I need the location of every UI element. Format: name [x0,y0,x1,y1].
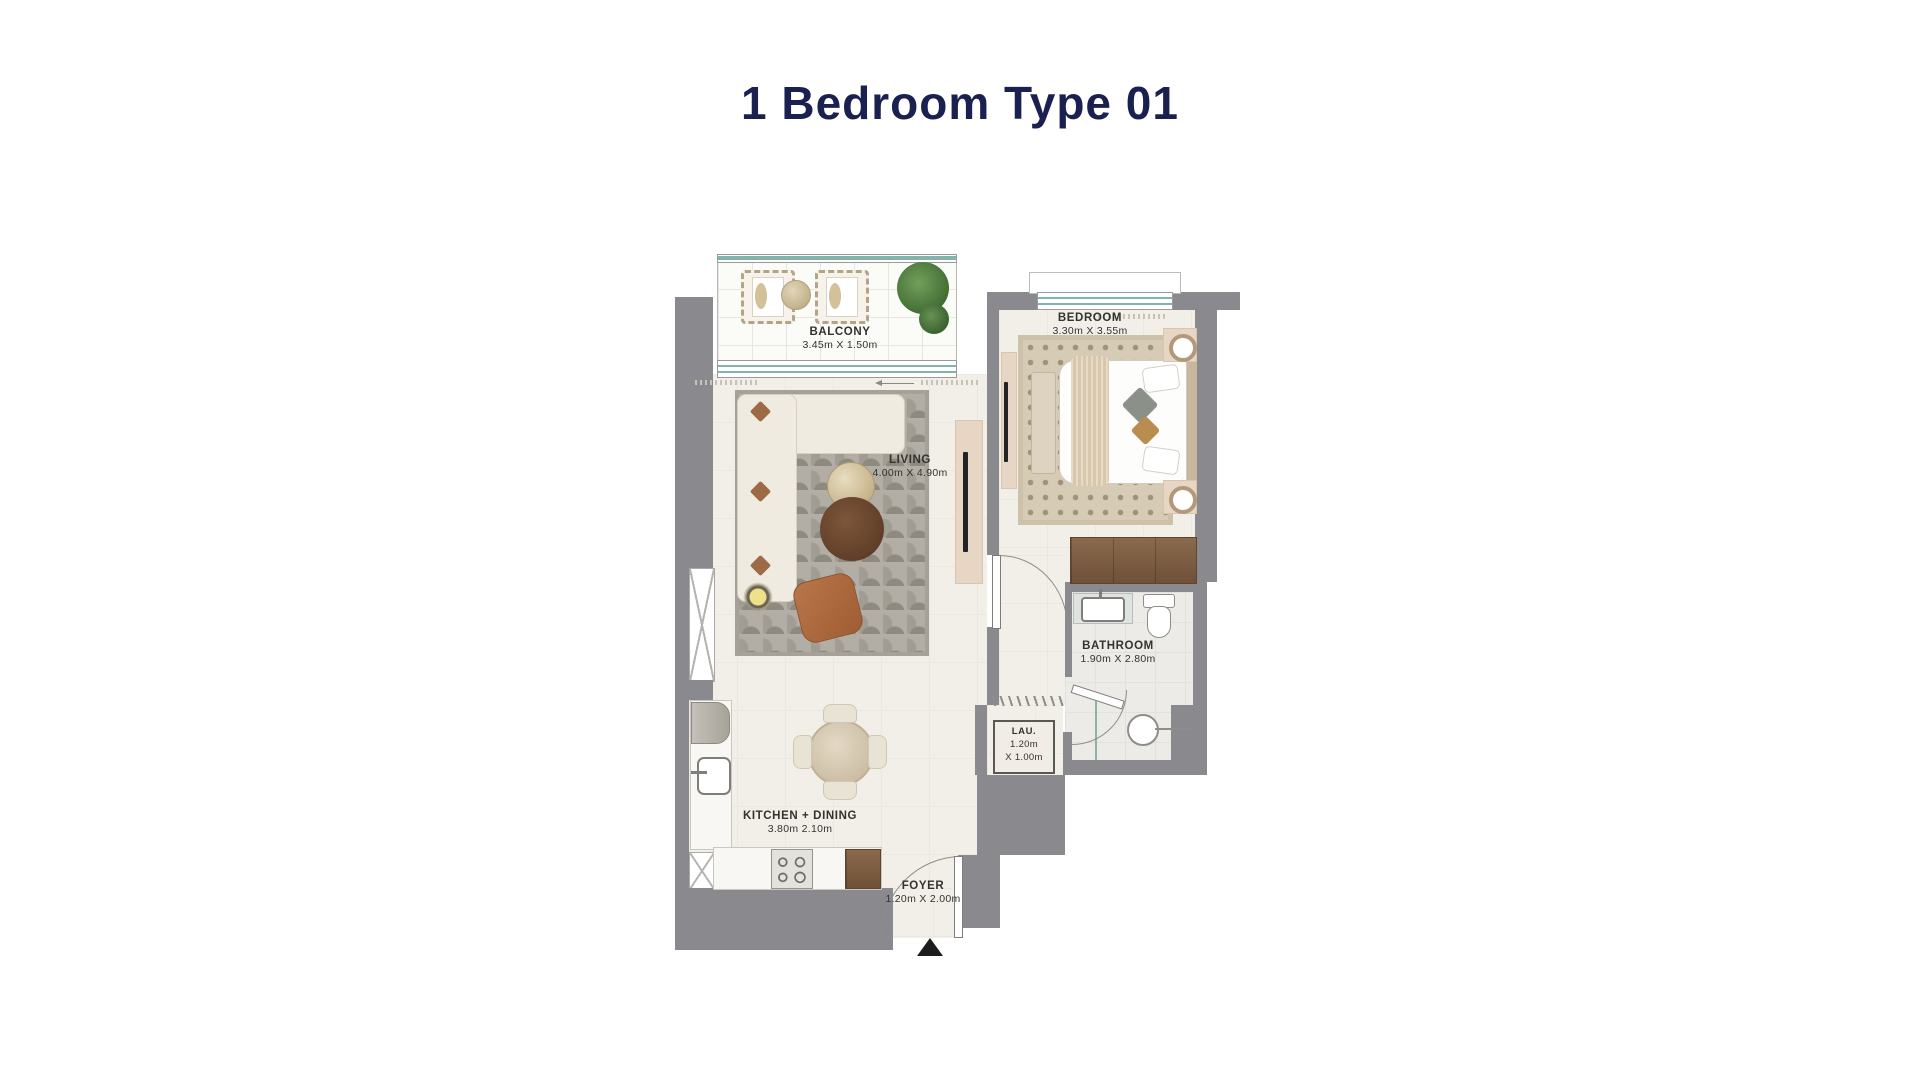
bed-runner-blanket [1071,356,1109,486]
armchair-pillow [829,283,841,309]
fridge [691,702,730,744]
coffee-table-wood [820,497,884,561]
laundry-dims-2: X 1.00m [995,752,1053,765]
foyer-label: FOYER 1.20m X 2.00m [875,880,971,905]
wall-bathroom-left-lower [1063,732,1072,775]
balcony-dims: 3.45m X 1.50m [735,339,945,351]
nightstand-lamp-bottom [1169,486,1197,514]
direction-arrow-icon [880,383,914,384]
wall-bottom-left-block [675,888,893,950]
dining-chair-left [793,735,812,769]
bed-pillow-2 [1141,446,1180,476]
sofa-body [737,394,797,602]
balcony-sliding-door [717,360,957,378]
tv-bedroom [1004,382,1008,462]
armchair-pillow [755,283,767,309]
wall-middle-upper [987,307,999,555]
wall-right-upper [1195,310,1217,582]
wall-right-lower [1193,582,1207,705]
nightstand-lamp-top [1169,334,1197,362]
living-name: LIVING [825,454,995,466]
bathroom-label: BATHROOM 1.90m X 2.80m [1052,640,1184,665]
laundry-dims-1: 1.20m [995,739,1053,752]
bench-foot-of-bed [1031,372,1056,474]
wall-left-mid [689,472,713,568]
floor-plan-page: 1 Bedroom Type 01 [0,0,1920,1080]
bathroom-sink [1081,597,1125,622]
dining-chair-top [823,704,857,723]
kitchen-faucet [691,771,707,774]
curtain-living-right [921,380,981,385]
shower-drain [1127,714,1159,746]
kitchen-label: KITCHEN + DINING 3.80m 2.10m [715,810,885,835]
dining-chair-bottom [823,781,857,800]
wall-top-middle [987,292,1037,310]
bathroom-dims: 1.90m X 2.80m [1052,653,1184,665]
laundry-label-box: LAU. 1.20m X 1.00m [993,720,1055,774]
laundry-name: LAU. [995,726,1053,739]
toilet-bowl [1147,606,1171,638]
shower-arm [1155,728,1193,730]
tv-console-living [955,420,983,584]
service-shaft-2 [689,852,715,890]
kitchen-sink [697,757,731,795]
stove [771,849,813,889]
wall-top-right [1171,292,1240,310]
living-label: LIVING 4.00m X 4.90m [825,454,995,479]
wall-middle-lower [987,627,999,705]
curtain-living-left [695,380,757,385]
bedroom-window [1037,292,1173,310]
bedroom-dims: 3.30m X 3.55m [1005,325,1175,337]
direction-arrow-head-icon [875,380,882,386]
kitchen-name: KITCHEN + DINING [715,810,885,822]
floor-lamp [743,582,773,612]
dining-table [808,720,874,786]
wall-bathroom-bottom [1065,760,1207,775]
dining-chair-right [868,735,887,769]
bedroom-label: BEDROOM 3.30m X 3.55m [1005,312,1175,337]
balcony-name: BALCONY [735,326,945,338]
bedroom-window-sill [1029,272,1181,294]
floor-plan: BALCONY 3.45m X 1.50m LIVING 4.00m X 4.9… [675,252,1245,952]
balcony-side-table [781,280,811,310]
bed-pillow-1 [1141,364,1180,394]
balcony-armchair-2 [815,270,869,324]
wardrobe [1070,537,1197,584]
wall-left-small [689,680,713,700]
bathroom-name: BATHROOM [1052,640,1184,652]
bathroom-faucet [1099,589,1102,599]
foyer-name: FOYER [875,880,971,892]
foyer-dims: 1.20m X 2.00m [875,893,971,905]
bedroom-name: BEDROOM [1005,312,1175,324]
entry-arrow-icon [917,938,943,956]
laundry-bifold-doors [988,696,1064,706]
living-dims: 4.00m X 4.90m [825,467,995,479]
wall-left [675,297,689,888]
page-title: 1 Bedroom Type 01 [0,76,1920,130]
kitchen-dims: 3.80m 2.10m [715,823,885,835]
wall-laundry-mass [977,775,1065,855]
service-shaft [689,568,715,682]
bedroom-door-leaf [992,555,1001,629]
balcony-label: BALCONY 3.45m X 1.50m [735,326,945,351]
wall-laundry-left [975,705,987,775]
